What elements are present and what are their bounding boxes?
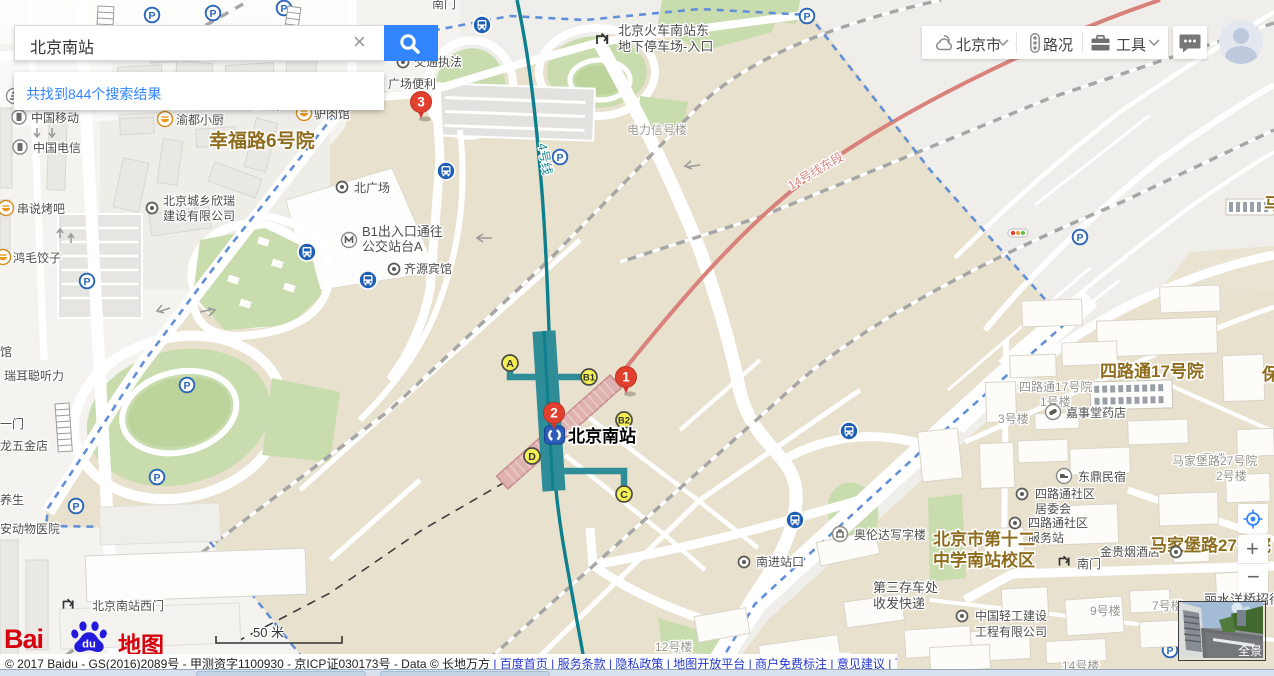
svg-text:中国轻工建设: 中国轻工建设 <box>975 608 1047 623</box>
svg-text:北京城乡欣瑞: 北京城乡欣瑞 <box>163 194 235 208</box>
svg-text:奥伦达写字楼: 奥伦达写字楼 <box>854 527 926 542</box>
svg-text:B2: B2 <box>618 416 630 427</box>
svg-text:9号楼: 9号楼 <box>1090 603 1121 618</box>
svg-text:中学南站校区: 中学南站校区 <box>933 550 1035 570</box>
svg-text:安动物医院: 安动物医院 <box>0 521 60 536</box>
svg-text:居委会: 居委会 <box>1035 502 1071 516</box>
svg-text:公交站台A: 公交站台A <box>362 239 423 254</box>
svg-text:北京市第十二: 北京市第十二 <box>933 529 1035 549</box>
svg-text:中国移动: 中国移动 <box>31 110 79 125</box>
svg-text:3: 3 <box>417 95 425 110</box>
svg-text:A: A <box>506 358 514 370</box>
svg-text:渝都小厨: 渝都小厨 <box>176 112 224 127</box>
svg-text:B1出入口通往: B1出入口通往 <box>362 224 443 239</box>
svg-text:电力信号楼: 电力信号楼 <box>627 122 687 137</box>
svg-text:北京南站: 北京南站 <box>568 426 636 446</box>
svg-text:工程有限公司: 工程有限公司 <box>975 624 1047 639</box>
svg-text:四路通社区: 四路通社区 <box>1028 515 1088 530</box>
svg-text:南门: 南门 <box>432 0 456 11</box>
svg-text:养生: 养生 <box>0 492 24 507</box>
svg-text:一门: 一门 <box>0 416 24 431</box>
svg-text:龙五金店: 龙五金店 <box>0 438 48 453</box>
svg-text:四路通社区: 四路通社区 <box>1035 486 1095 501</box>
svg-text:齐源宾馆: 齐源宾馆 <box>404 261 452 276</box>
svg-text:北广场: 北广场 <box>354 181 390 195</box>
svg-text:D: D <box>528 451 536 463</box>
svg-text:四路通17号院: 四路通17号院 <box>1019 379 1092 394</box>
svg-text:北京火车南站东: 北京火车南站东 <box>618 23 709 38</box>
svg-text:3号楼: 3号楼 <box>998 411 1029 426</box>
svg-text:du: du <box>82 639 96 651</box>
svg-text:C: C <box>620 489 628 501</box>
svg-text:广场便利: 广场便利 <box>388 77 436 91</box>
svg-text:2: 2 <box>550 406 558 421</box>
svg-text:12号楼: 12号楼 <box>655 639 692 654</box>
svg-text:嘉事堂药店: 嘉事堂药店 <box>1066 406 1126 420</box>
svg-text:1: 1 <box>622 370 630 385</box>
svg-text:地下停车场-入口: 地下停车场-入口 <box>618 39 713 54</box>
svg-text:马: 马 <box>1264 195 1274 214</box>
svg-text:收发快递: 收发快递 <box>873 596 925 611</box>
svg-text:2号楼: 2号楼 <box>1216 468 1247 483</box>
svg-text:幸福路6号院: 幸福路6号院 <box>209 129 315 152</box>
svg-text:串说烤吧: 串说烤吧 <box>17 201 65 216</box>
svg-text:南门: 南门 <box>1077 556 1101 571</box>
svg-text:中国电信: 中国电信 <box>33 140 81 155</box>
svg-text:建设有限公司: 建设有限公司 <box>163 209 235 223</box>
svg-text:南进站口: 南进站口 <box>756 554 804 569</box>
svg-text:瑞耳聪听力: 瑞耳聪听力 <box>4 369 64 383</box>
svg-text:B1: B1 <box>583 373 596 384</box>
svg-text:馆: 馆 <box>0 344 12 359</box>
svg-text:保: 保 <box>1261 364 1274 384</box>
svg-text:第三存车处: 第三存车处 <box>873 580 938 595</box>
svg-text:马家堡路27号院: 马家堡路27号院 <box>1172 453 1257 468</box>
svg-text:北京南站西门: 北京南站西门 <box>92 598 164 613</box>
svg-text:鸿毛饺子: 鸿毛饺子 <box>13 250 61 265</box>
svg-text:四路通17号院: 四路通17号院 <box>1100 361 1204 381</box>
svg-text:东鼎民宿: 东鼎民宿 <box>1078 469 1126 484</box>
